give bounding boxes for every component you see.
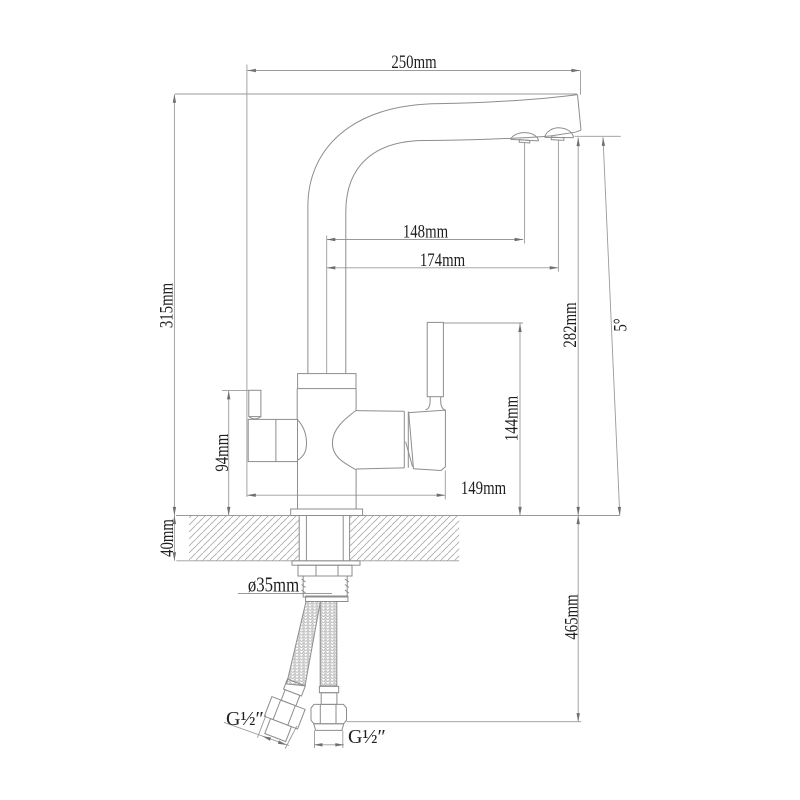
svg-text:144mm: 144mm (501, 396, 522, 441)
svg-text:250mm: 250mm (391, 51, 436, 72)
svg-text:315mm: 315mm (156, 283, 177, 328)
svg-text:ø35mm: ø35mm (248, 574, 299, 597)
svg-text:465mm: 465mm (561, 594, 582, 639)
svg-text:149mm: 149mm (461, 477, 506, 498)
svg-text:174mm: 174mm (420, 249, 465, 270)
svg-text:148mm: 148mm (403, 221, 448, 242)
svg-text:G½″: G½″ (348, 726, 386, 748)
svg-text:40mm: 40mm (156, 519, 177, 557)
svg-text:94mm: 94mm (211, 434, 232, 472)
svg-text:G½″: G½″ (226, 708, 264, 730)
svg-text:5°: 5° (610, 318, 631, 331)
svg-text:282mm: 282mm (559, 302, 580, 347)
